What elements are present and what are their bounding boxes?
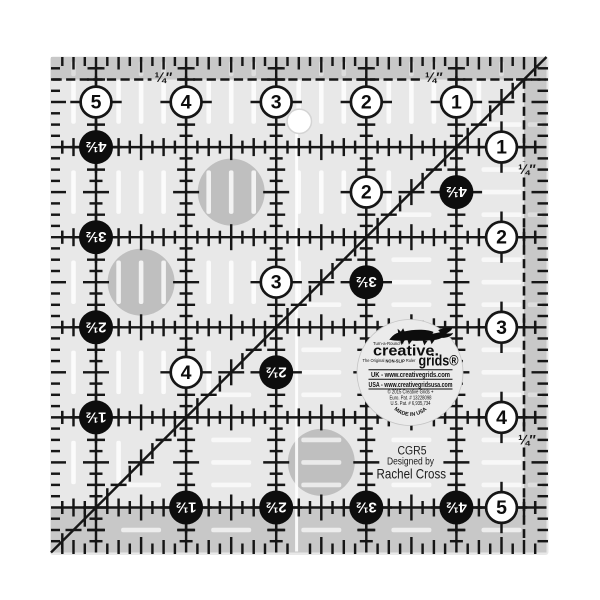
svg-text:5: 5	[91, 92, 102, 114]
svg-text:2: 2	[496, 227, 507, 249]
svg-text:UK - www.creativegrids.com: UK - www.creativegrids.com	[371, 370, 450, 379]
svg-text:4½: 4½	[446, 183, 467, 200]
svg-text:U.S. Pat. # 6,935,734: U.S. Pat. # 6,935,734	[391, 401, 431, 407]
svg-text:3½: 3½	[86, 228, 107, 245]
svg-text:4: 4	[496, 407, 507, 429]
svg-text:USA - www.creativegridsusa.com: USA - www.creativegridsusa.com	[369, 380, 453, 389]
svg-text:¼″: ¼″	[518, 162, 536, 177]
svg-text:5: 5	[496, 497, 507, 519]
svg-text:2½: 2½	[266, 499, 287, 516]
svg-text:4½: 4½	[86, 138, 107, 155]
svg-text:grids®: grids®	[419, 353, 459, 369]
svg-text:1: 1	[451, 92, 462, 114]
svg-text:4: 4	[181, 92, 192, 114]
svg-text:1½: 1½	[176, 499, 197, 516]
svg-text:¼″: ¼″	[425, 70, 443, 85]
svg-text:3: 3	[271, 92, 282, 114]
svg-text:¼″: ¼″	[518, 432, 536, 447]
svg-text:Rachel Cross: Rachel Cross	[377, 466, 447, 481]
svg-text:1½: 1½	[86, 408, 107, 425]
svg-text:1: 1	[496, 137, 507, 159]
svg-text:3: 3	[496, 317, 507, 339]
svg-text:2: 2	[361, 182, 372, 204]
svg-text:3½: 3½	[356, 273, 377, 290]
svg-text:2½: 2½	[86, 318, 107, 335]
svg-text:¼″: ¼″	[155, 70, 173, 85]
svg-text:3½: 3½	[356, 499, 377, 516]
svg-text:3: 3	[271, 272, 282, 294]
svg-text:4: 4	[181, 362, 192, 384]
svg-text:4½: 4½	[446, 499, 467, 516]
svg-text:2: 2	[361, 92, 372, 114]
svg-text:The Original NON-SLIP Ruler: The Original NON-SLIP Ruler	[363, 358, 416, 363]
svg-text:2½: 2½	[266, 363, 287, 380]
